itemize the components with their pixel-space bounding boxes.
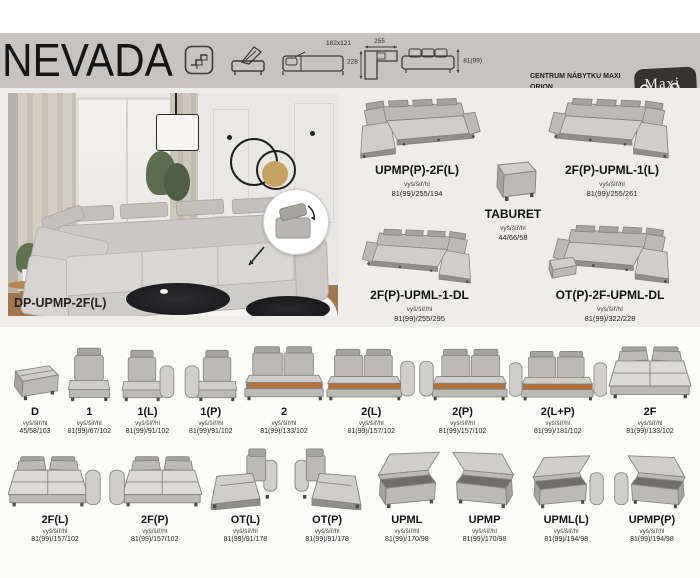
headrest-adjust-icon bbox=[264, 190, 328, 254]
config-image bbox=[487, 155, 539, 203]
module-cell: OT(P) vyš/šíř/hl 81(99)/91/178 bbox=[289, 448, 365, 543]
module-cell: UPML(L) vyš/šíř/hl 81(99)/194/98 bbox=[526, 448, 606, 543]
module-dims-label: vyš/šíř/hl bbox=[418, 420, 508, 427]
module-dims: 81(99)/170/98 bbox=[449, 536, 521, 543]
inset-pointer-arrow bbox=[244, 245, 266, 271]
module-cell: 1(L) vyš/šíř/hl 81(99)/91/102 bbox=[117, 340, 179, 435]
config-name: 2F(P)-UPML-1(L) bbox=[532, 163, 692, 177]
module-name: OT(L) bbox=[207, 514, 283, 526]
module-dims-label: vyš/šíř/hl bbox=[63, 420, 115, 427]
photo-pendant-lamp bbox=[156, 114, 199, 151]
module-dims: 81(99)/157/102 bbox=[326, 428, 416, 435]
module-cell: 1 vyš/šíř/hl 81(99)/67/102 bbox=[63, 340, 115, 435]
module-dims-label: vyš/šíř/hl bbox=[8, 528, 102, 535]
module-dims-label: vyš/šíř/hl bbox=[117, 420, 179, 427]
module-dims: 81(99)/91/178 bbox=[207, 536, 283, 543]
room-photo: DP-UPMP-2F(L) bbox=[8, 93, 338, 316]
module-image-pouf bbox=[8, 340, 62, 402]
header-bar: NEVADA 182x121 bbox=[0, 33, 700, 88]
photo-model-label: DP-UPMP-2F(L) bbox=[14, 296, 106, 310]
module-image-seat bbox=[63, 340, 115, 402]
module-dims-label: vyš/šíř/hl bbox=[8, 420, 62, 427]
module-dims: 81(99)/194/98 bbox=[612, 536, 692, 543]
config-image bbox=[342, 226, 497, 284]
photo-sofa-headrest-2 bbox=[120, 202, 169, 219]
module-name: UPML(L) bbox=[526, 514, 606, 526]
module-name: OT(P) bbox=[289, 514, 365, 526]
photo-sconce-1 bbox=[227, 135, 232, 140]
module-dims: 81(99)/170/98 bbox=[371, 536, 443, 543]
module-dims-label: vyš/šíř/hl bbox=[180, 420, 242, 427]
config-dims: 81(99)/255/295 bbox=[342, 314, 497, 323]
module-name: 1 bbox=[63, 406, 115, 418]
config-block: OT(P)-2F-UPML-DL vyš/šíř/hl 81(99)/322/2… bbox=[525, 222, 695, 323]
module-image-flat-arm-left bbox=[108, 448, 202, 510]
modular-system-icon bbox=[184, 45, 214, 75]
module-image-flat-arm-right bbox=[8, 448, 102, 510]
config-name: OT(P)-2F-UPML-DL bbox=[525, 288, 695, 302]
sofa-bed-function-icon bbox=[230, 43, 266, 77]
module-name: 1(L) bbox=[117, 406, 179, 418]
config-block: 2F(P)-UPML-1-DL vyš/šíř/hl 81(99)/255/29… bbox=[342, 226, 497, 323]
module-name: UPML bbox=[371, 514, 443, 526]
module-cell: OT(L) vyš/šíř/hl 81(99)/91/178 bbox=[207, 448, 283, 543]
module-name: UPMP(P) bbox=[612, 514, 692, 526]
photo-table-cup bbox=[160, 289, 168, 294]
module-cell: 2F(L) vyš/šíř/hl 81(99)/157/102 bbox=[8, 448, 102, 543]
module-name: 2F(P) bbox=[108, 514, 202, 526]
module-image-chaise-left bbox=[207, 448, 283, 510]
module-dims-label: vyš/šíř/hl bbox=[326, 420, 416, 427]
config-image bbox=[532, 95, 692, 159]
module-name: 2(L) bbox=[326, 406, 416, 418]
photo-plant-tall-2 bbox=[164, 163, 190, 201]
sleeping-size-icon: 182x121 bbox=[281, 40, 351, 80]
module-dims: 81(99)/194/98 bbox=[526, 536, 606, 543]
module-cell: 2(P) vyš/šíř/hl 81(99)/157/102 bbox=[418, 340, 508, 435]
module-name: 2(P) bbox=[418, 406, 508, 418]
config-dims: 81(99)/322/228 bbox=[525, 314, 695, 323]
module-image-seat-arm-right bbox=[117, 340, 179, 402]
module-dims: 45/58/103 bbox=[8, 428, 62, 435]
module-cell: 2F(P) vyš/šíř/hl 81(99)/157/102 bbox=[108, 448, 202, 543]
module-dims-label: vyš/šíř/hl bbox=[371, 528, 443, 535]
module-name: 2F(L) bbox=[8, 514, 102, 526]
module-dims: 81(99)/91/102 bbox=[117, 428, 179, 435]
module-image-seat-arm-left bbox=[180, 340, 242, 402]
module-dims-label: vyš/šíř/hl bbox=[289, 528, 365, 535]
config-image bbox=[525, 222, 695, 284]
module-cell: 2(L+P) vyš/šíř/hl 81(99)/181/102 bbox=[509, 340, 607, 435]
config-dims-label: vyš/šíř/hl bbox=[525, 306, 695, 313]
config-dims-label: vyš/šíř/hl bbox=[532, 181, 692, 188]
module-dims-label: vyš/šíř/hl bbox=[526, 528, 606, 535]
module-name: UPMP bbox=[449, 514, 521, 526]
photo-sconce-2 bbox=[310, 131, 315, 136]
module-image-storage-arm-left bbox=[526, 448, 606, 510]
module-cell: 2 vyš/šíř/hl 81(99)/133/102 bbox=[243, 340, 325, 435]
photo-coffee-table bbox=[126, 283, 230, 315]
module-cell: UPML vyš/šíř/hl 81(99)/170/98 bbox=[371, 448, 443, 543]
module-dims-label: vyš/šíř/hl bbox=[608, 420, 692, 427]
module-dims: 81(99)/157/102 bbox=[8, 536, 102, 543]
module-dims: 81(99)/181/102 bbox=[509, 428, 607, 435]
module-dims-label: vyš/šíř/hl bbox=[612, 528, 692, 535]
modules-row-2: 2F(L) vyš/šíř/hl 81(99)/157/102 2F(P) vy… bbox=[8, 448, 692, 543]
config-name: TABURET bbox=[470, 207, 556, 221]
config-name: 2F(P)-UPML-1-DL bbox=[342, 288, 497, 302]
photo-lamp-cord bbox=[175, 93, 177, 115]
module-image-two-open-arm-right bbox=[326, 340, 416, 402]
module-name: D bbox=[8, 406, 62, 418]
module-name: 1(P) bbox=[180, 406, 242, 418]
module-cell: UPMP vyš/šíř/hl 81(99)/170/98 bbox=[449, 448, 521, 543]
module-dims-label: vyš/šíř/hl bbox=[449, 528, 521, 535]
module-image-two-open-arm-both bbox=[509, 340, 607, 402]
photo-coffee-table-2 bbox=[246, 296, 330, 316]
module-cell: 2F vyš/šíř/hl 81(99)/133/102 bbox=[608, 340, 692, 435]
module-dims-label: vyš/šíř/hl bbox=[207, 528, 283, 535]
module-cell: 1(P) vyš/šíř/hl 81(99)/91/102 bbox=[180, 340, 242, 435]
module-dims: 81(99)/157/102 bbox=[108, 536, 202, 543]
module-dims-label: vyš/šíř/hl bbox=[108, 528, 202, 535]
module-dims-label: vyš/šíř/hl bbox=[243, 420, 325, 427]
module-image-storage-left bbox=[371, 448, 443, 510]
module-cell: 2(L) vyš/šíř/hl 81(99)/157/102 bbox=[326, 340, 416, 435]
module-cell: D vyš/šíř/hl 45/58/103 bbox=[8, 340, 62, 435]
module-dims: 81(99)/133/102 bbox=[243, 428, 325, 435]
module-dims: 81(99)/67/102 bbox=[63, 428, 115, 435]
module-name: 2F bbox=[608, 406, 692, 418]
module-image-storage-arm-right bbox=[612, 448, 692, 510]
photo-sofa-headrest-3 bbox=[176, 199, 225, 216]
config-dims: 81(99)/255/261 bbox=[532, 189, 692, 198]
sofa-height-icon: 81(99) bbox=[400, 44, 482, 78]
config-dims-label: vyš/šíř/hl bbox=[342, 306, 497, 313]
module-dims: 81(99)/91/178 bbox=[289, 536, 365, 543]
sofa-height-value: 81(99) bbox=[463, 58, 482, 65]
module-image-two-open bbox=[243, 340, 325, 402]
module-image-two-open-arm-left bbox=[418, 340, 508, 402]
module-cell: UPMP(P) vyš/šíř/hl 81(99)/194/98 bbox=[612, 448, 692, 543]
modules-row-1: D vyš/šíř/hl 45/58/103 1 vyš/šíř/hl 81(9… bbox=[8, 340, 692, 435]
corner-dimensions-icon: 255 228 bbox=[347, 39, 403, 85]
module-image-chaise-right bbox=[289, 448, 365, 510]
module-image-flat bbox=[608, 340, 692, 402]
photo-detail-inset bbox=[263, 189, 329, 255]
module-dims: 81(99)/157/102 bbox=[418, 428, 508, 435]
config-image bbox=[342, 95, 492, 159]
module-name: 2 bbox=[243, 406, 325, 418]
photo-wall-straw-disc bbox=[262, 161, 288, 187]
module-dims-label: vyš/šíř/hl bbox=[509, 420, 607, 427]
module-dims: 81(99)/133/102 bbox=[608, 428, 692, 435]
catalog-page: NEVADA 182x121 bbox=[0, 0, 700, 578]
module-dims: 81(99)/91/102 bbox=[180, 428, 242, 435]
product-title: NEVADA bbox=[2, 33, 173, 87]
module-image-storage-right bbox=[449, 448, 521, 510]
module-name: 2(L+P) bbox=[509, 406, 607, 418]
config-block: 2F(P)-UPML-1(L) vyš/šíř/hl 81(99)/255/26… bbox=[532, 95, 692, 198]
